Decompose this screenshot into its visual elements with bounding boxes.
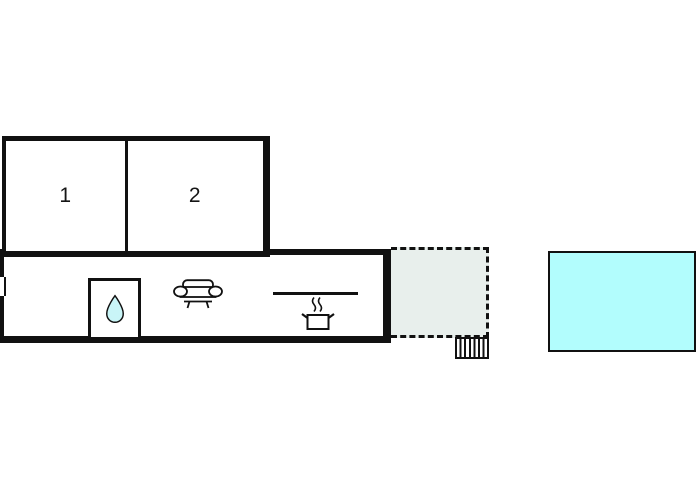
window-icon xyxy=(4,277,6,296)
room-2-label: 2 xyxy=(189,184,201,208)
stairs-icon xyxy=(455,337,489,359)
stove-pot-icon xyxy=(299,296,337,332)
sofa-icon xyxy=(173,279,223,310)
terrace-area xyxy=(391,247,489,338)
room-2: 2 xyxy=(127,141,263,251)
water-drop-icon xyxy=(104,294,126,324)
room-1-label: 1 xyxy=(59,184,71,208)
kitchen-counter xyxy=(273,292,358,296)
swimming-pool xyxy=(548,251,696,352)
bathroom xyxy=(88,278,141,337)
room-1: 1 xyxy=(6,141,125,251)
floor-plan-canvas: 1 2 xyxy=(0,0,700,500)
